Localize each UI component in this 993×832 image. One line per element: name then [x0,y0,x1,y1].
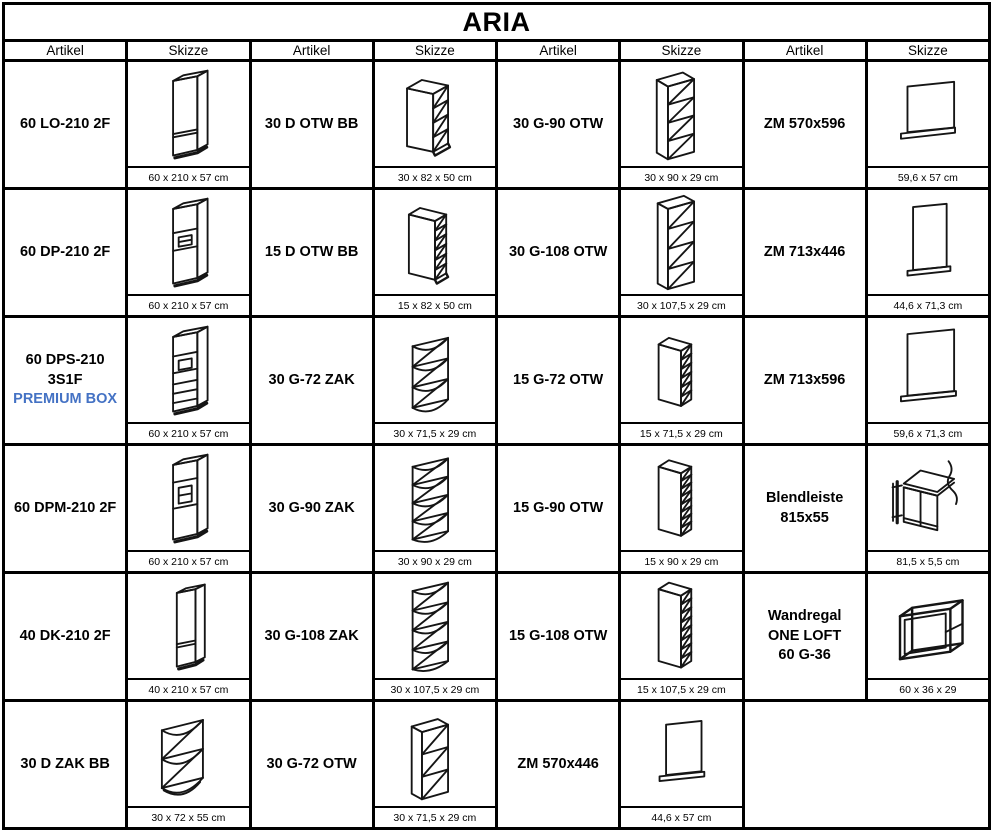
dimension-label: 60 x 210 x 57 cm [128,294,248,315]
corner-open-wall-shelf-5-tall-sketch [375,574,495,678]
narrow-open-wall-cabinet-tallest-sketch [621,574,741,678]
article-cell: 30 D OTW BB [250,61,373,189]
article-name: 60 LO-210 2F [5,115,125,135]
article-name: ZM 713x596 [745,371,865,391]
article-subname-premium-box: PREMIUM BOX [5,390,125,410]
article-name: Blendleiste [745,489,865,509]
sketch-cell: 81,5 x 5,5 cm [866,445,989,573]
dimension-label: 30 x 107,5 x 29 cm [621,294,741,315]
narrow-open-wall-cabinet-tall-sketch [621,446,741,550]
article-cell: 15 G-90 OTW [497,445,620,573]
sketch-cell: 60 x 210 x 57 cm [127,445,250,573]
article-name-line2: 815x55 [745,509,865,529]
sketch-cell: 15 x 71,5 x 29 cm [620,317,743,445]
dimension-label: 59,6 x 71,3 cm [868,422,988,443]
tall-narrow-cabinet-2-fronts-sketch [128,574,248,678]
dimension-label: 40 x 210 x 57 cm [128,678,248,699]
article-cell: 60 DPS-210 3S1F PREMIUM BOX [4,317,127,445]
dimension-label: 59,6 x 57 cm [868,166,988,187]
article-name: 60 DPS-210 3S1F [5,351,125,390]
open-frame-wall-shelf-sketch [868,574,988,678]
article-cell: 60 DP-210 2F [4,189,127,317]
product-table: ARIA Artikel Skizze Artikel Skizze Artik… [2,2,991,830]
open-wall-cabinet-4-shelves-sketch [621,62,741,166]
table-row: 60 DP-210 2F 60 x 210 x 57 cm 15 D OTW B… [4,189,990,317]
article-name: 60 DPM-210 2F [5,499,125,519]
sketch-cell: 60 x 210 x 57 cm [127,317,250,445]
title-row: ARIA [4,4,990,41]
dimension-label: 30 x 71,5 x 29 cm [375,422,495,443]
article-cell: 30 G-90 OTW [497,61,620,189]
sketch-cell: 15 x 107,5 x 29 cm [620,573,743,701]
article-name: 30 G-72 ZAK [252,371,372,391]
article-cell: ZM 570x596 [743,61,866,189]
table-row: 40 DK-210 2F 40 x 210 x 57 cm 30 G-108 Z… [4,573,990,701]
tall-microwave-housing-cabinet-sketch [128,446,248,550]
article-name: ZM 713x446 [745,243,865,263]
dimension-label: 60 x 210 x 57 cm [128,550,248,571]
table-row: 60 LO-210 2F 60 x 210 x 57 cm 30 D OTW B… [4,61,990,189]
article-name: 30 G-108 ZAK [252,627,372,647]
article-name: 15 G-72 OTW [498,371,618,391]
article-name: 60 DP-210 2F [5,243,125,263]
appliance-front-panel-tall-sketch [868,318,988,422]
article-name: 15 G-108 OTW [498,627,618,647]
dimension-label: 60 x 36 x 29 [868,678,988,699]
open-wall-cabinet-3-shelves-sketch [375,702,495,806]
column-header-artikel: Artikel [250,41,373,61]
dimension-label: 30 x 107,5 x 29 cm [375,678,495,699]
catalog-title: ARIA [4,4,990,41]
sketch-cell: 30 x 82 x 50 cm [373,61,496,189]
table-row: 60 DPM-210 2F 60 x 210 x 57 cm 30 G-90 Z… [4,445,990,573]
dimension-label: 30 x 90 x 29 cm [621,166,741,187]
article-name: ZM 570x596 [745,115,865,135]
article-name: 30 D ZAK BB [5,755,125,775]
article-cell: 30 D ZAK BB [4,701,127,829]
open-shelf-base-cabinet-sketch [375,62,495,166]
corner-open-shelf-base-cabinet-sketch [128,702,248,806]
tall-oven-housing-with-drawers-sketch [128,318,248,422]
column-header-artikel: Artikel [743,41,866,61]
sketch-cell: 60 x 36 x 29 [866,573,989,701]
sketch-cell: 59,6 x 57 cm [866,61,989,189]
dimension-label: 60 x 210 x 57 cm [128,422,248,443]
narrow-open-wall-cabinet-sketch [621,318,741,422]
sketch-cell: 44,6 x 57 cm [620,701,743,829]
open-wall-cabinet-4-shelves-tall-sketch [621,190,741,294]
article-cell: ZM 713x596 [743,317,866,445]
sketch-cell: 59,6 x 71,3 cm [866,317,989,445]
sketch-cell: 60 x 210 x 57 cm [127,61,250,189]
article-name: Wandregal [745,607,865,627]
article-name-line2: ONE LOFT [745,627,865,647]
article-cell: 30 G-108 OTW [497,189,620,317]
article-cell: 15 G-108 OTW [497,573,620,701]
sketch-cell: 30 x 107,5 x 29 cm [620,189,743,317]
dimension-label: 15 x 107,5 x 29 cm [621,678,741,699]
dimension-label: 30 x 82 x 50 cm [375,166,495,187]
catalog-page: ARIA Artikel Skizze Artikel Skizze Artik… [0,0,993,832]
dimension-label: 81,5 x 5,5 cm [868,550,988,571]
sketch-cell: 44,6 x 71,3 cm [866,189,989,317]
column-header-artikel: Artikel [497,41,620,61]
article-cell: Wandregal ONE LOFT 60 G-36 [743,573,866,701]
sketch-cell: 30 x 71,5 x 29 cm [373,701,496,829]
sketch-cell: 40 x 210 x 57 cm [127,573,250,701]
article-cell: 40 DK-210 2F [4,573,127,701]
dimension-label: 30 x 90 x 29 cm [375,550,495,571]
column-header-skizze: Skizze [866,41,989,61]
sketch-cell: 30 x 107,5 x 29 cm [373,573,496,701]
article-name: 40 DK-210 2F [5,627,125,647]
dimension-label: 30 x 71,5 x 29 cm [375,806,495,827]
sketch-cell: 30 x 72 x 55 cm [127,701,250,829]
article-name-line3: 60 G-36 [745,646,865,666]
narrow-open-shelf-base-cabinet-sketch [375,190,495,294]
article-cell: Blendleiste 815x55 [743,445,866,573]
article-name: 30 D OTW BB [252,115,372,135]
sketch-cell: 30 x 71,5 x 29 cm [373,317,496,445]
table-row: 60 DPS-210 3S1F PREMIUM BOX 60 x 210 x 5… [4,317,990,445]
tall-oven-housing-cabinet-sketch [128,190,248,294]
header-row: Artikel Skizze Artikel Skizze Artikel Sk… [4,41,990,61]
dimension-label: 15 x 82 x 50 cm [375,294,495,315]
article-cell: 30 G-72 OTW [250,701,373,829]
appliance-front-panel-tall-narrow-sketch [868,190,988,294]
dimension-label: 44,6 x 71,3 cm [868,294,988,315]
sketch-cell: 60 x 210 x 57 cm [127,189,250,317]
article-name: 30 G-90 OTW [498,115,618,135]
corner-open-wall-shelf-5-sketch [375,446,495,550]
column-header-skizze: Skizze [620,41,743,61]
article-name: 15 G-90 OTW [498,499,618,519]
empty-cell [743,701,990,829]
sketch-cell: 15 x 90 x 29 cm [620,445,743,573]
sketch-cell: 30 x 90 x 29 cm [373,445,496,573]
article-cell: 30 G-90 ZAK [250,445,373,573]
article-name: 15 D OTW BB [252,243,372,263]
tall-cabinet-2-fronts-sketch [128,62,248,166]
dimension-label: 15 x 71,5 x 29 cm [621,422,741,443]
filler-strip-on-base-cabinet-sketch [868,446,988,550]
dimension-label: 44,6 x 57 cm [621,806,741,827]
sketch-cell: 15 x 82 x 50 cm [373,189,496,317]
column-header-skizze: Skizze [127,41,250,61]
article-cell: ZM 713x446 [743,189,866,317]
dimension-label: 30 x 72 x 55 cm [128,806,248,827]
dimension-label: 15 x 90 x 29 cm [621,550,741,571]
article-cell: 60 LO-210 2F [4,61,127,189]
appliance-front-panel-small-sketch [621,702,741,806]
article-cell: ZM 570x446 [497,701,620,829]
corner-open-wall-shelf-4-sketch [375,318,495,422]
appliance-front-panel-sketch [868,62,988,166]
article-name: 30 G-108 OTW [498,243,618,263]
article-name: 30 G-72 OTW [252,755,372,775]
article-cell: 15 D OTW BB [250,189,373,317]
dimension-label: 60 x 210 x 57 cm [128,166,248,187]
article-cell: 30 G-72 ZAK [250,317,373,445]
table-row: 30 D ZAK BB 30 x 72 x 55 cm 30 G-72 OTW [4,701,990,829]
article-cell: 60 DPM-210 2F [4,445,127,573]
article-name: 30 G-90 ZAK [252,499,372,519]
article-cell: 15 G-72 OTW [497,317,620,445]
column-header-skizze: Skizze [373,41,496,61]
article-name: ZM 570x446 [498,755,618,775]
sketch-cell: 30 x 90 x 29 cm [620,61,743,189]
column-header-artikel: Artikel [4,41,127,61]
article-cell: 30 G-108 ZAK [250,573,373,701]
